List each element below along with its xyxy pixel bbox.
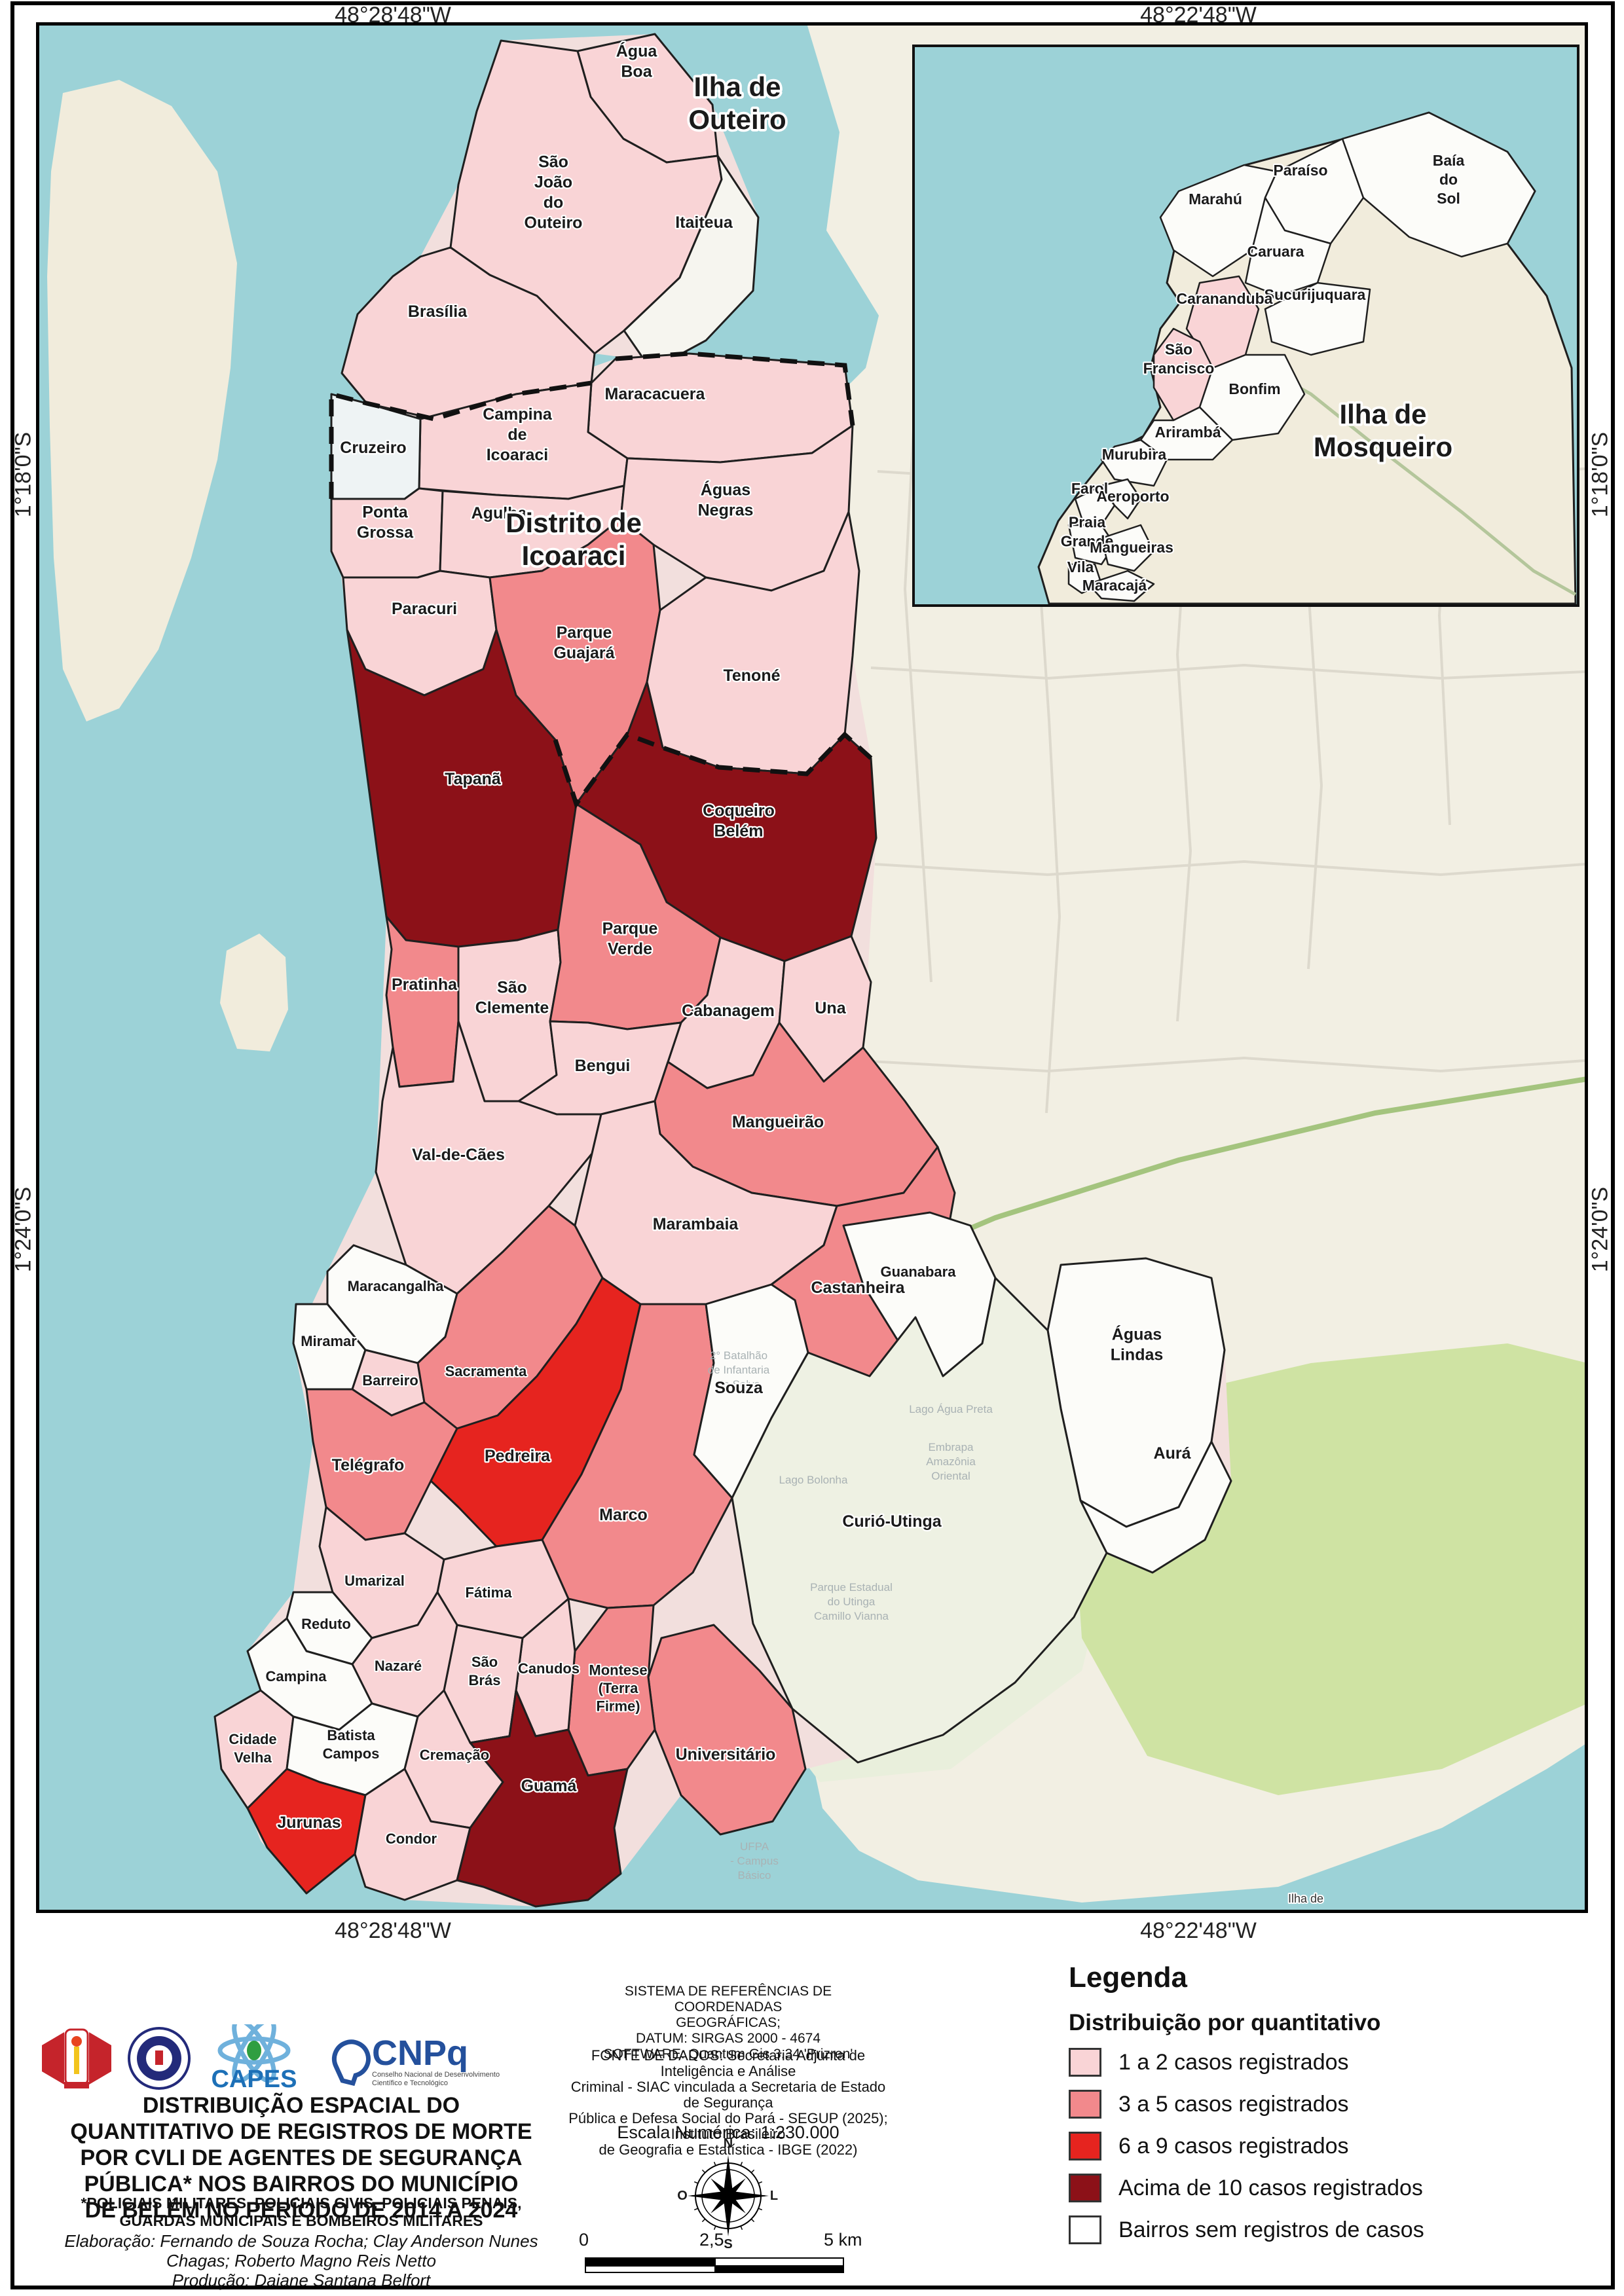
compass-tick (758, 2182, 762, 2183)
legend: Legenda Distribuição por quantitativo 1 … (1069, 1961, 1593, 2246)
compass-tick (694, 2182, 698, 2183)
coord-label-left-upper: 1°18'0"S (11, 432, 37, 517)
ufpa-crest-ribbon-left (42, 2032, 64, 2085)
legend-item: 6 a 9 casos registrados (1069, 2130, 1593, 2162)
cnpq-tagline: Científico e Tecnológico (372, 2079, 448, 2087)
compass-tick (702, 2219, 705, 2221)
legend-title: Legenda (1069, 1961, 1593, 1994)
coord-label-bottom-left: 48°28'48"W (335, 1918, 451, 1944)
compass-tick (714, 2162, 716, 2166)
legend-item: Acima de 10 casos registrados (1069, 2172, 1593, 2204)
compass-tick (758, 2208, 762, 2210)
compass-tick (751, 2219, 754, 2221)
ufpa-crest-flame (71, 2036, 82, 2047)
compass-rose-icon: NSLO (676, 2138, 781, 2253)
compass-letter-o: O (677, 2189, 688, 2203)
ufpa-crest-ribbon-right (89, 2032, 111, 2085)
coord-label-bottom-right: 48°22'48"W (1140, 1918, 1257, 1944)
map-footnote: *POLICIAIS MILITARES, POLICIAIS CIVIS, P… (39, 2195, 563, 2230)
legend-swatch (1069, 2174, 1101, 2202)
legend-item: 1 a 2 casos registrados (1069, 2047, 1593, 2078)
legend-item-label: Acima de 10 casos registrados (1118, 2176, 1423, 2201)
legend-item: 3 a 5 casos registrados (1069, 2088, 1593, 2120)
cnpq-tagline: Conselho Nacional de Desenvolvimento (372, 2071, 500, 2079)
compass-tick (751, 2170, 754, 2172)
capes-wordmark: CAPES (212, 2066, 297, 2092)
legend-item-label: 1 a 2 casos registrados (1118, 2050, 1349, 2075)
institution-logos: CAPESCNPqConselho Nacional de Desenvolvi… (38, 2024, 562, 2092)
map-layout-page: 48°28'48"W 48°22'48"W 48°28'48"W 48°22'4… (0, 0, 1624, 2296)
cnpq-wordmark: CNPq (372, 2033, 468, 2073)
scalebar-label-mid: 2,5 (699, 2230, 724, 2250)
coord-label-right-lower: 1°24'0"S (1588, 1187, 1614, 1272)
map-credits: Elaboração: Fernando de Souza Rocha; Cla… (39, 2231, 563, 2290)
scalebar-label-5km: 5 km (824, 2230, 862, 2250)
compass-hub (724, 2191, 733, 2200)
compass-tick (694, 2208, 698, 2210)
capes-center (247, 2041, 261, 2060)
legend-item-label: 6 a 9 casos registrados (1118, 2134, 1349, 2159)
scale-bar (585, 2257, 844, 2273)
compass-letter-n: N (724, 2138, 733, 2151)
legend-swatch (1069, 2215, 1101, 2244)
compass-tick (741, 2162, 742, 2166)
compass-tick (702, 2170, 705, 2172)
label-line: O (677, 2189, 688, 2203)
compass-tick (714, 2226, 716, 2230)
compass-letter-s: S (724, 2237, 732, 2251)
legend-swatch (1069, 2048, 1101, 2077)
compass-letter-l: L (770, 2189, 778, 2203)
legend-items: 1 a 2 casos registrados3 a 5 casos regis… (1069, 2047, 1593, 2246)
label-line: N (724, 2138, 733, 2151)
label-line: S (724, 2237, 732, 2251)
ufpa-crest-torch (74, 2047, 79, 2074)
legend-item: Bairros sem registros de casos (1069, 2214, 1593, 2246)
compass-tick (741, 2226, 742, 2230)
legend-swatch (1069, 2132, 1101, 2160)
legend-subtitle: Distribuição por quantitativo (1069, 2010, 1593, 2036)
legend-swatch (1069, 2090, 1101, 2119)
map-frame (36, 22, 1588, 1913)
university-seal-crest (155, 2050, 163, 2065)
coord-label-left-lower: 1°24'0"S (11, 1187, 37, 1272)
label-line: L (770, 2189, 778, 2203)
scalebar-label-0: 0 (579, 2230, 589, 2250)
legend-item-label: 3 a 5 casos registrados (1118, 2092, 1349, 2117)
coord-label-right-upper: 1°18'0"S (1588, 432, 1614, 517)
cnpq-head-icon (334, 2042, 368, 2083)
legend-item-label: Bairros sem registros de casos (1118, 2217, 1424, 2243)
ufpa-crest-banner (64, 2082, 89, 2088)
